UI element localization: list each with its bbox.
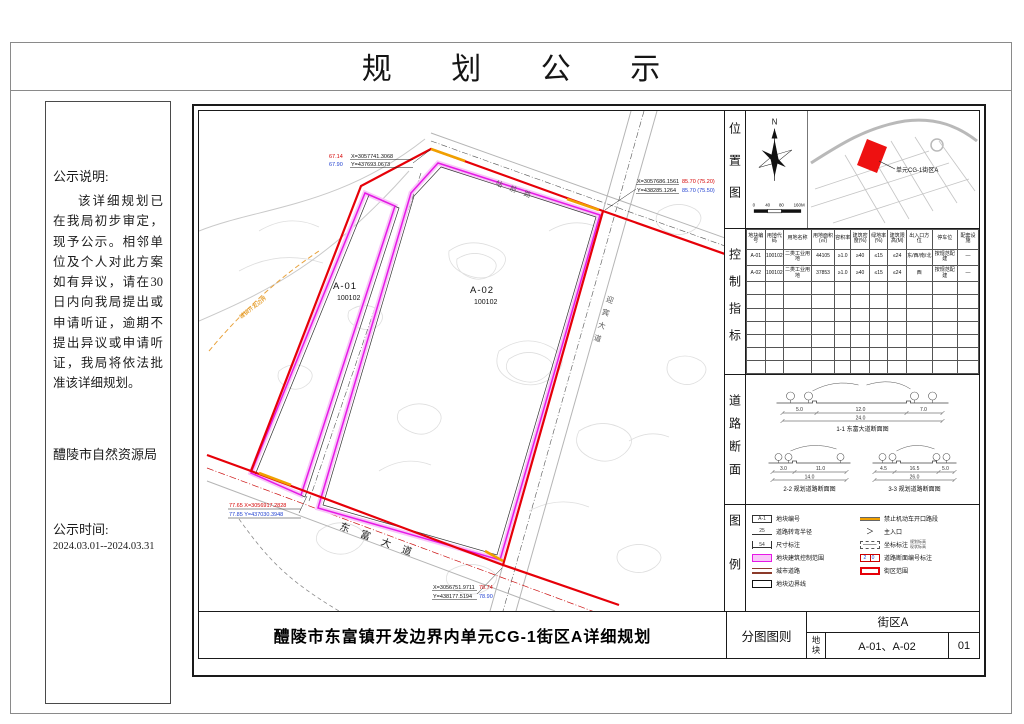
svg-text:2-2 规划道路断面图: 2-2 规划道路断面图 (783, 485, 835, 493)
indicator-row: A-01100102二类工业用地44105≥1.0≥40≤15≤24东/西/南/… (747, 249, 979, 265)
indicator-header: 建筑限高(M) (888, 230, 907, 250)
main-entrance-icon: ＞ (860, 528, 880, 536)
location-minimap: 单元CG-1街区A (808, 111, 979, 228)
notice-agency: 醴陵市自然资源局 (53, 444, 163, 463)
indicator-cell: 37853 (811, 265, 834, 281)
minimap-roads (811, 120, 977, 223)
indicator-cell: — (958, 265, 979, 281)
road-sections-diagram: 5.0 12.0 7.0 24.0 1-1 东富大道断面图 (746, 375, 979, 504)
indicator-cell: ≥1.0 (835, 265, 851, 281)
svg-text:3-3 规划道路断面图: 3-3 规划道路断面图 (888, 485, 940, 493)
road-section-1: 5.0 12.0 7.0 24.0 1-1 东富大道断面图 (777, 382, 949, 433)
notice-time-value: 2024.03.01--2024.03.31 (53, 541, 163, 552)
notice-panel: 公示说明: 该详细规划已在我局初步审定，现予公示。相邻单位及个人对此方案如有异议… (45, 101, 171, 704)
svg-text:78.90: 78.90 (479, 594, 493, 600)
svg-text:X=3057741.3068: X=3057741.3068 (351, 154, 393, 160)
parcel-no-icon: A-1 (752, 515, 772, 523)
indicators-table: 地块编号用地代码用地名称用地面积(㎡)容积率建筑密度(%)绿地率(%)建筑限高(… (746, 229, 979, 374)
legend-left-column: A-1地块编号25道路转弯半径54尺寸标注地块建筑控制范围城市道路地块边界线 (752, 514, 854, 588)
legend-item-turn-radius: 25道路转弯半径 (752, 527, 854, 536)
svg-text:Y=438285.1264: Y=438285.1264 (637, 188, 676, 194)
road-centerlines (207, 111, 725, 611)
svg-text:67.14: 67.14 (329, 154, 343, 160)
parcel-field-label: 地块 (807, 633, 826, 658)
right-panel: 位置图 N 0 (725, 111, 979, 611)
road-sections-section: 道路断面 (725, 375, 979, 505)
svg-text:1-1 东富大道断面图: 1-1 东富大道断面图 (836, 425, 888, 433)
indicator-empty-row (747, 282, 979, 295)
block-name: 街区A (807, 612, 979, 633)
road-edges (207, 111, 725, 611)
notice-body: 该详细规划已在我局初步审定，现予公示。相邻单位及个人对此方案如有异议，请在30日… (53, 191, 163, 394)
notice-time-label: 公示时间: (53, 519, 163, 538)
block-extent-icon (860, 567, 880, 575)
road-section-2: 3.0 11.0 14.0 2-2 规划道路断面图 (769, 445, 851, 493)
indicator-cell: ≥1.0 (835, 249, 851, 265)
indicator-cell: A-02 (747, 265, 766, 281)
location-section-title: 位置图 (725, 111, 746, 228)
page-title: 规 划 公 示 (336, 44, 687, 88)
coord-callout-top: 67.14 67.90 X=3057741.3068 Y=437693.0673 (329, 150, 430, 168)
indicator-cell: ≤15 (869, 265, 888, 281)
indicator-header: 用地面积(㎡) (811, 230, 834, 250)
plan-map-svg: 城镇开发边界 (199, 111, 725, 611)
tree-icons (787, 382, 937, 403)
plan-map: 城镇开发边界 (199, 111, 725, 611)
parcel-a02-id: A-02 (470, 285, 494, 296)
coord-label-icon (860, 541, 880, 549)
legend-item-block-extent: 街区范围 (860, 566, 977, 575)
svg-text:77.85 Y=437030.3948: 77.85 Y=437030.3948 (229, 512, 283, 518)
parcel-a02 (318, 163, 600, 560)
indicator-header: 用地名称 (784, 230, 812, 250)
compass-rose-icon: N 0 40 80 160M (746, 111, 807, 228)
road-sections-section-title: 道路断面 (725, 375, 746, 504)
indicator-header: 容积率 (835, 230, 851, 250)
svg-text:40: 40 (765, 202, 770, 207)
indicator-cell: 100102 (765, 265, 784, 281)
svg-text:X=3057686.1561: X=3057686.1561 (637, 179, 679, 185)
indicator-cell: 按规范配建 (932, 265, 958, 281)
section-no-icon: 2 0 (860, 554, 880, 562)
indicator-empty-row (747, 360, 979, 373)
svg-text:0: 0 (753, 202, 756, 207)
indicator-header: 地块编号 (747, 230, 766, 250)
svg-text:11.0: 11.0 (816, 466, 826, 472)
legend-item-section-no: 2 0道路断面编号标注 (860, 553, 977, 562)
indicator-cell: ≥40 (851, 249, 870, 265)
indicator-header: 出入口方位 (906, 230, 932, 250)
page-title-band: 规 划 公 示 (10, 42, 1012, 91)
legend-item-parcel-boundary: 地块边界线 (752, 579, 854, 588)
compass-box: N 0 40 80 160M (746, 111, 808, 228)
svg-text:4.5: 4.5 (880, 466, 887, 472)
coord-callout-bottom-left: 77.65 X=3056917.2828 77.85 Y=437030.3948 (228, 496, 307, 518)
indicator-cell: ≤24 (888, 249, 907, 265)
plan-title: 醴陵市东富镇开发边界内单元CG-1街区A详细规划 (199, 612, 727, 658)
sheet-number: 01 (949, 633, 979, 658)
minimap-callout: 单元CG-1街区A (896, 166, 938, 174)
legend-right-column: 禁止机动车开口路段＞主入口坐标标注规划标高现状标高2 0道路断面编号标注街区范围 (860, 514, 977, 588)
parcel-a01 (251, 193, 399, 497)
road-label-zhanqian: 站前路 (494, 178, 539, 202)
indicator-empty-row (747, 347, 979, 360)
coord-callout-right: X=3057686.1561 85.70 (75.20) Y=438285.12… (605, 179, 715, 210)
city-road-icon (752, 568, 772, 574)
no-opening-icon (860, 517, 880, 521)
svg-text:5.0: 5.0 (796, 407, 803, 413)
indicator-header: 建筑密度(%) (851, 230, 870, 250)
svg-text:26.0: 26.0 (910, 475, 920, 481)
legend-section-title: 图例 (725, 505, 746, 611)
svg-text:5.0: 5.0 (942, 466, 949, 472)
svg-text:160M: 160M (794, 202, 805, 207)
indicator-cell: 东/西/南/北 (906, 249, 932, 265)
indicator-header: 绿地率(%) (869, 230, 888, 250)
parcel-a02-code: 100102 (474, 299, 497, 306)
title-block: 醴陵市东富镇开发边界内单元CG-1街区A详细规划 分图图则 街区A 地块 A-0… (199, 611, 979, 658)
svg-text:3.0: 3.0 (780, 466, 787, 472)
legend-item-main-entrance: ＞主入口 (860, 527, 977, 536)
scale-bar: 0 40 80 160M (753, 202, 805, 212)
indicator-cell: 二类工业用地 (784, 265, 812, 281)
svg-text:67.90: 67.90 (329, 162, 343, 168)
svg-text:X=3056751.9711: X=3056751.9711 (433, 585, 475, 591)
svg-text:24.0: 24.0 (856, 416, 866, 422)
parcel-field-value: A-01、A-02 (826, 633, 949, 658)
svg-text:12.0: 12.0 (856, 407, 866, 413)
indicator-cell: ≥40 (851, 265, 870, 281)
indicator-cell: 西 (906, 265, 932, 281)
indicator-cell: 100102 (765, 249, 784, 265)
indicator-header: 用地代码 (765, 230, 784, 250)
turn-radius-icon: 25 (752, 528, 772, 535)
indicators-section-title: 控制指标 (725, 229, 746, 374)
legend-item-city-road: 城市道路 (752, 566, 854, 575)
svg-text:16.5: 16.5 (910, 466, 920, 472)
svg-text:77.65 X=3056917.2828: 77.65 X=3056917.2828 (229, 503, 286, 509)
legend-item-parcel-no: A-1地块编号 (752, 514, 854, 523)
svg-text:Y=438177.5194: Y=438177.5194 (433, 594, 472, 600)
legend-item-dimension: 54尺寸标注 (752, 540, 854, 549)
coord-callout-bottom-center: X=3056751.9711 78.74 Y=438177.5194 78.90 (432, 568, 502, 600)
indicators-section: 控制指标 地块编号用地代码用地名称用地面积(㎡)容积率建筑密度(%)绿地率(%)… (725, 229, 979, 375)
indicator-header-row: 地块编号用地代码用地名称用地面积(㎡)容积率建筑密度(%)绿地率(%)建筑限高(… (747, 230, 979, 250)
indicator-cell: 按规范配建 (932, 249, 958, 265)
drawing-frame: 城镇开发边界 (198, 110, 980, 659)
svg-text:80: 80 (779, 202, 784, 207)
indicator-cell: 二类工业用地 (784, 249, 812, 265)
parcel-a01-id: A-01 (333, 281, 357, 292)
legend-section: 图例 A-1地块编号25道路转弯半径54尺寸标注地块建筑控制范围城市道路地块边界… (725, 505, 979, 611)
notice-heading: 公示说明: (53, 166, 163, 185)
indicator-empty-row (747, 295, 979, 308)
indicator-header: 停车位 (932, 230, 958, 250)
location-section: 位置图 N 0 (725, 111, 979, 229)
parcel-a01-code: 100102 (337, 295, 360, 302)
legend-item-coord-label: 坐标标注规划标高现状标高 (860, 540, 977, 549)
legend-item-no-opening: 禁止机动车开口路段 (860, 514, 977, 523)
drawing-sheet: 城镇开发边界 (192, 104, 986, 677)
svg-text:14.0: 14.0 (805, 475, 815, 481)
svg-text:85.70 (75.50): 85.70 (75.50) (682, 188, 715, 194)
north-label: N (772, 118, 778, 127)
indicator-empty-row (747, 321, 979, 334)
svg-text:7.0: 7.0 (920, 407, 927, 413)
indicator-cell: ≤15 (869, 249, 888, 265)
indicator-empty-row (747, 308, 979, 321)
indicator-row: A-02100102二类工业用地37853≥1.0≥40≤15≤24西按规范配建… (747, 265, 979, 281)
parcel-boundary-icon (752, 580, 772, 588)
indicator-cell: A-01 (747, 249, 766, 265)
block-boundary (207, 149, 725, 605)
indicator-cell: 44105 (811, 249, 834, 265)
sheet-type: 分图图则 (727, 612, 807, 658)
indicator-empty-row (747, 334, 979, 347)
svg-text:85.70 (75.20): 85.70 (75.20) (682, 179, 715, 185)
indicator-header: 配套设施 (958, 230, 979, 250)
indicator-cell: — (958, 249, 979, 265)
indicator-cell: ≤24 (888, 265, 907, 281)
road-section-3: 4.5 16.5 5.0 26.0 3-3 规划道路断面图 (873, 445, 957, 493)
minimap-block-highlight (857, 139, 887, 173)
control-band-icon (752, 554, 772, 562)
svg-text:Y=437693.0673: Y=437693.0673 (351, 162, 390, 168)
dimension-icon: 54 (752, 541, 772, 549)
development-boundary-label: 城镇开发边界 (237, 294, 268, 321)
legend-item-control-band: 地块建筑控制范围 (752, 553, 854, 562)
